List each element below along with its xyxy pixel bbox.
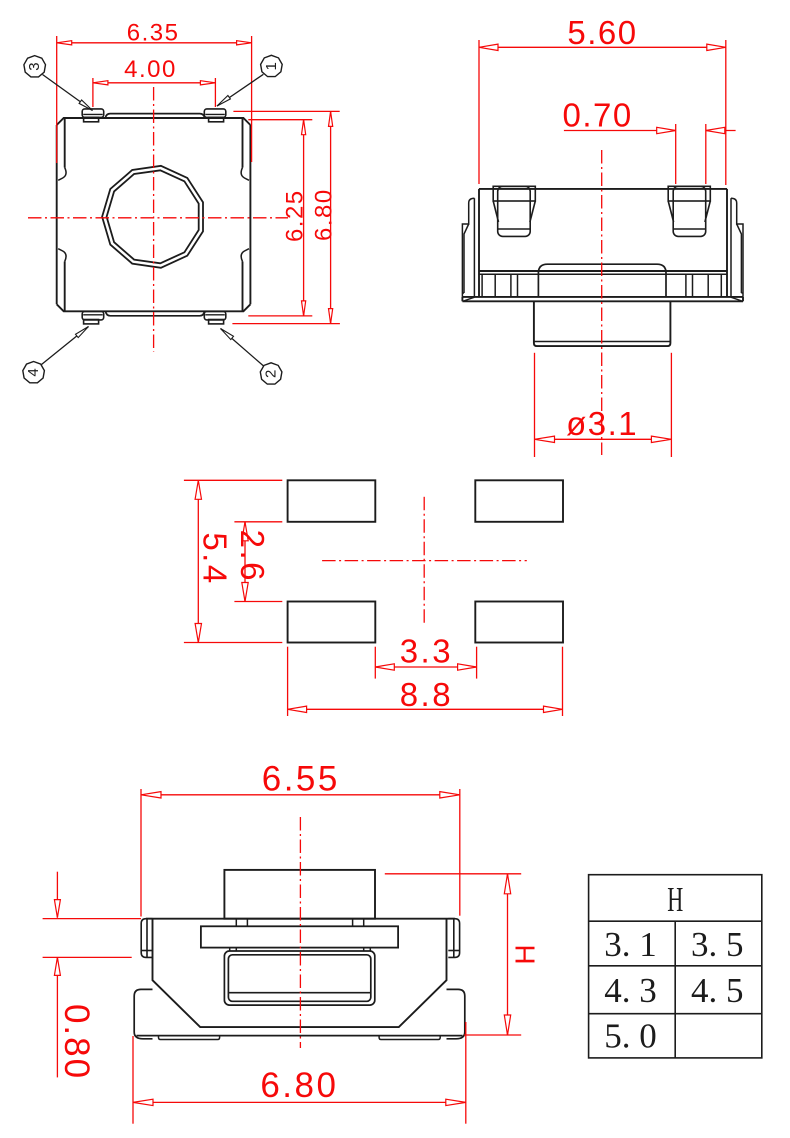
svg-text:4: 4 [25,368,42,376]
svg-text:5.60: 5.60 [567,14,637,51]
svg-text:2.6: 2.6 [234,530,271,583]
svg-text:5.4: 5.4 [197,532,234,585]
svg-text:0.70: 0.70 [562,97,632,134]
svg-text:5. 0: 5. 0 [604,1017,657,1056]
svg-text:2: 2 [263,370,280,378]
svg-text:3. 5: 3. 5 [691,925,744,964]
svg-text:8.8: 8.8 [400,676,453,713]
svg-text:3.3: 3.3 [400,633,453,670]
svg-text:6.80: 6.80 [311,188,338,241]
svg-text:6.35: 6.35 [127,19,180,46]
svg-text:4. 5: 4. 5 [691,971,744,1010]
svg-text:4.00: 4.00 [124,56,177,83]
svg-text:ø3.1: ø3.1 [566,405,638,442]
svg-text:1: 1 [263,62,280,70]
svg-text:3: 3 [26,62,43,70]
svg-text:6.25: 6.25 [282,189,309,242]
svg-text:H: H [510,944,541,964]
svg-text:6.80: 6.80 [260,1066,338,1105]
svg-text:H: H [667,880,683,919]
svg-text:6.55: 6.55 [262,760,340,799]
svg-text:4. 3: 4. 3 [604,971,657,1010]
svg-text:0.80: 0.80 [57,1004,96,1080]
svg-text:3. 1: 3. 1 [604,925,657,964]
